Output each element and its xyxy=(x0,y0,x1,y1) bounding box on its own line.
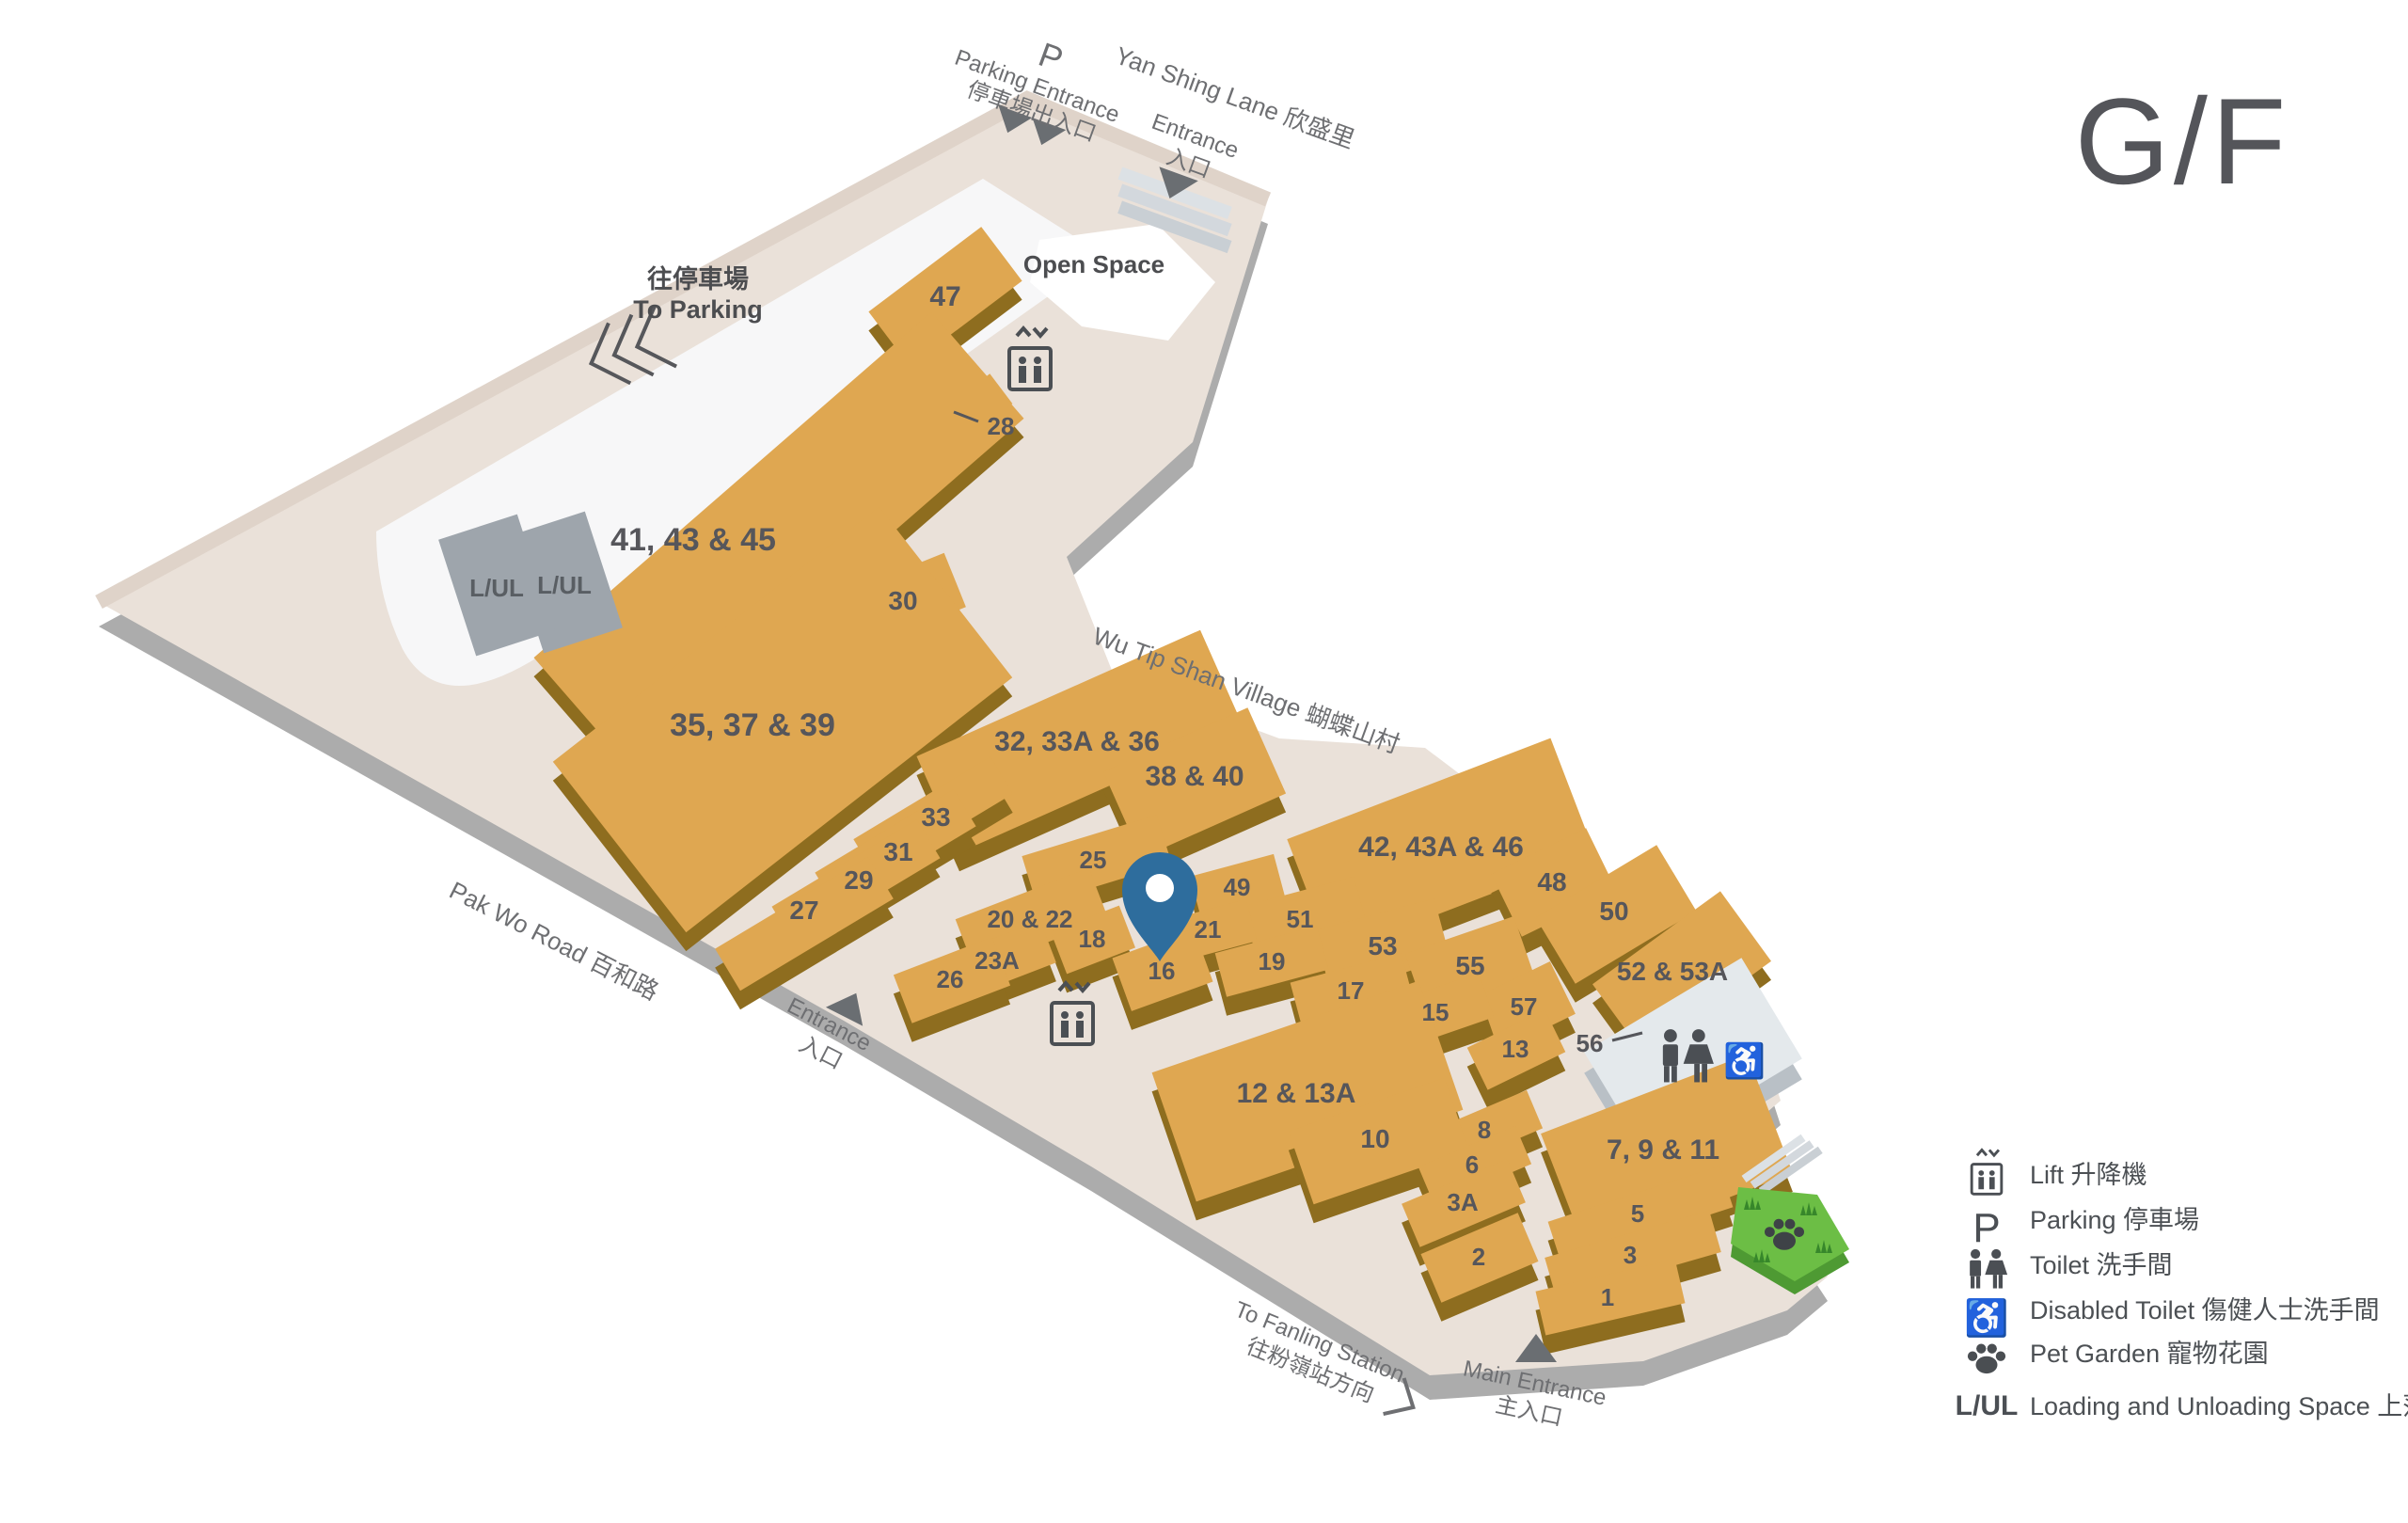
lul-label-1: L/UL xyxy=(469,574,524,602)
unit-label-50: 50 xyxy=(1599,896,1628,926)
unit-label-19: 19 xyxy=(1259,947,1286,976)
unit-label-32-33a-36: 32, 33A & 36 xyxy=(994,726,1160,757)
floor-title: G/F xyxy=(2075,72,2290,210)
unit-label-8: 8 xyxy=(1478,1116,1491,1144)
unit-label-41-43-45: 41, 43 & 45 xyxy=(610,522,776,558)
lul-label-2: L/UL xyxy=(537,571,592,599)
unit-label-38-40: 38 & 40 xyxy=(1145,761,1244,792)
toilet-icon xyxy=(1970,1249,2007,1289)
legend-parking-label: Parking 停車場 xyxy=(2030,1206,2199,1234)
unit-label-33: 33 xyxy=(921,802,950,832)
floor-plan-map: ♿ G/F Yan Shing Lane 欣盛里 Wu Tip Shan Vil… xyxy=(0,0,2408,1523)
unit-label-10: 10 xyxy=(1360,1124,1389,1153)
lul-icon: L/UL xyxy=(1956,1390,2019,1421)
legend-toilet-label: Toilet 洗手間 xyxy=(2030,1251,2173,1279)
unit-label-56: 56 xyxy=(1576,1029,1604,1057)
unit-label-5: 5 xyxy=(1631,1199,1644,1228)
to-parking-label-en: To Parking xyxy=(633,295,763,324)
pet-garden-icon xyxy=(1968,1343,2005,1373)
unit-label-25: 25 xyxy=(1080,846,1107,874)
unit-label-42-43a-46: 42, 43A & 46 xyxy=(1358,832,1524,863)
unit-label-26: 26 xyxy=(937,965,964,993)
unit-label-49: 49 xyxy=(1224,873,1251,901)
unit-label-7-9-11: 7, 9 & 11 xyxy=(1607,1134,1719,1166)
unit-label-27: 27 xyxy=(789,896,818,925)
unit-label-55: 55 xyxy=(1455,951,1484,980)
unit-label-3a: 3A xyxy=(1447,1188,1478,1216)
unit-label-51: 51 xyxy=(1287,905,1314,933)
unit-label-28: 28 xyxy=(988,412,1015,440)
unit-label-52-53a: 52 & 53A xyxy=(1617,957,1728,986)
unit-label-15: 15 xyxy=(1422,998,1450,1026)
parking-entrance-symbol: P xyxy=(1034,35,1069,79)
to-parking-label-zh: 往停車場 xyxy=(647,264,749,293)
unit-label-6: 6 xyxy=(1465,1150,1479,1179)
unit-label-30: 30 xyxy=(888,586,917,615)
disabled-toilet-map-icon: ♿ xyxy=(1723,1041,1766,1080)
lift-icon xyxy=(1972,1150,2002,1194)
unit-label-47: 47 xyxy=(929,281,960,312)
disabled-toilet-icon: ♿ xyxy=(1964,1297,2008,1339)
mall-floorplan-page: { "floor": "G/F", "roads": { "yan_shing_… xyxy=(0,0,2408,1523)
unit-label-31: 31 xyxy=(883,837,912,866)
unit-label-57: 57 xyxy=(1511,992,1538,1021)
legend-lift-label: Lift 升降機 xyxy=(2030,1161,2147,1189)
unit-label-2: 2 xyxy=(1472,1243,1485,1271)
unit-label-16: 16 xyxy=(1149,957,1176,985)
unit-label-1: 1 xyxy=(1601,1283,1614,1311)
open-space-label: Open Space xyxy=(1023,250,1164,278)
unit-label-17: 17 xyxy=(1338,976,1365,1005)
legend-lul-label: Loading and Unloading Space 上落貨停車位 xyxy=(2030,1392,2408,1420)
unit-label-23a: 23A xyxy=(974,946,1020,975)
unit-label-3: 3 xyxy=(1624,1241,1637,1269)
parking-icon: P xyxy=(1972,1205,2000,1251)
unit-label-13: 13 xyxy=(1502,1035,1529,1063)
unit-label-53: 53 xyxy=(1368,931,1397,960)
unit-label-20-22: 20 & 22 xyxy=(987,905,1072,933)
unit-label-12-13a: 12 & 13A xyxy=(1237,1078,1356,1109)
legend-disabled-toilet-label: Disabled Toilet 傷健人士洗手間 xyxy=(2030,1296,2380,1325)
legend: Lift 升降機 P Parking 停車場 Toilet 洗手間 ♿ Disa… xyxy=(1956,1150,2408,1421)
legend-pet-garden-label: Pet Garden 寵物花園 xyxy=(2030,1340,2269,1368)
unit-label-35-37-39: 35, 37 & 39 xyxy=(670,707,835,743)
unit-label-48: 48 xyxy=(1537,867,1566,896)
unit-label-21: 21 xyxy=(1195,915,1222,944)
unit-label-29: 29 xyxy=(844,865,873,895)
unit-label-18: 18 xyxy=(1079,925,1106,953)
